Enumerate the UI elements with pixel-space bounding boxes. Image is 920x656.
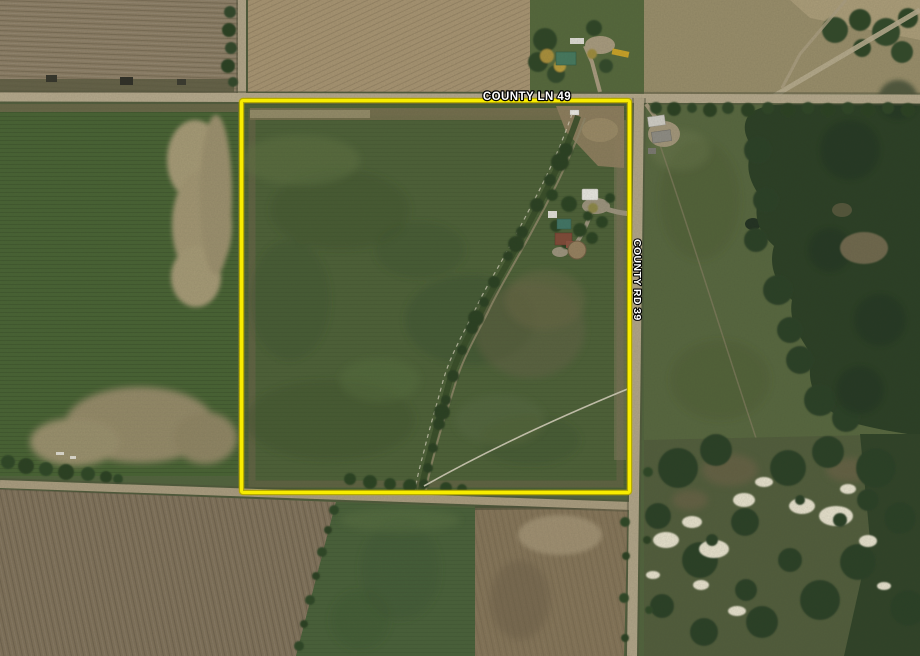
satellite-map[interactable]: COUNTY LN 49 COUNTY RD 39 bbox=[0, 0, 920, 656]
aerial-map-canvas[interactable]: COUNTY LN 49 COUNTY RD 39 bbox=[0, 0, 920, 656]
road-label-county-rd-vertical: COUNTY RD 39 bbox=[631, 239, 643, 321]
road-label-county-ln-49: COUNTY LN 49 bbox=[483, 91, 571, 103]
